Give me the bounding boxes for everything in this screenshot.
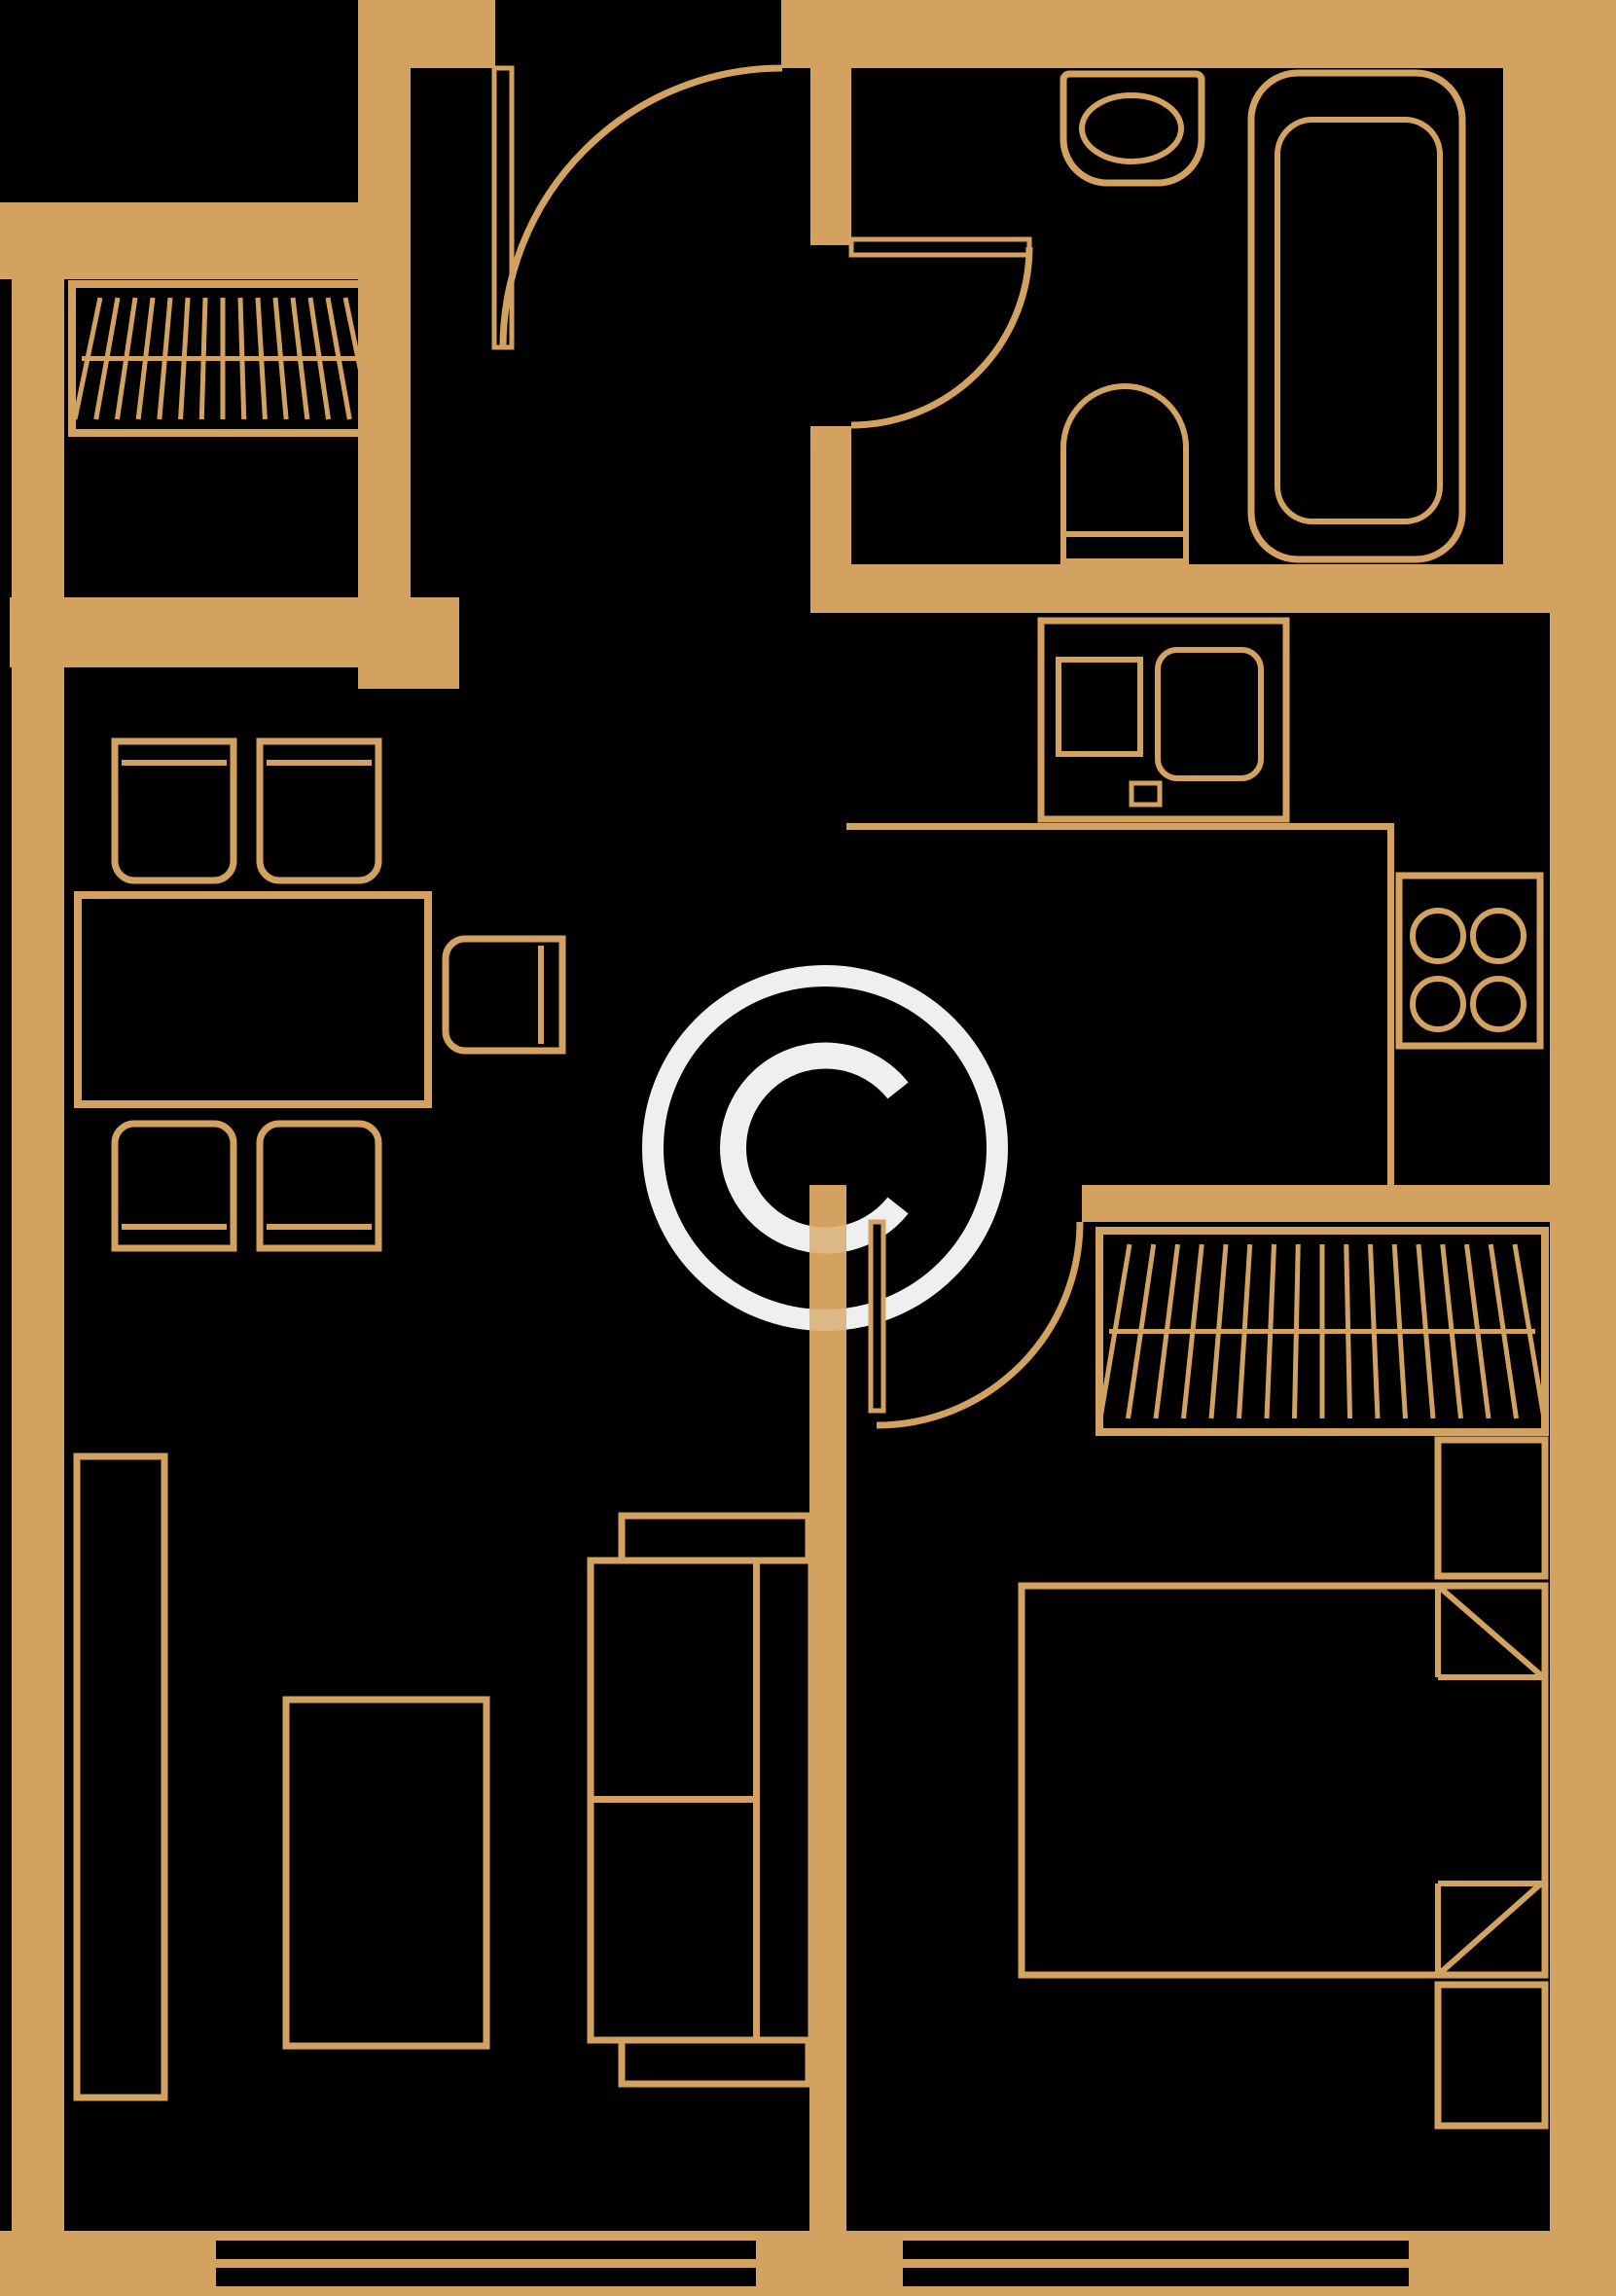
floor-plan-canvas [0, 0, 1616, 2296]
wall-entry-nub [411, 597, 459, 689]
wall-left-exterior [12, 202, 64, 2231]
wall-right-exterior [1550, 68, 1616, 2296]
floor-plan-page [0, 0, 1616, 2296]
kitchen-counter-edge-v [1387, 823, 1394, 1185]
sofa-seat-divider [591, 1796, 760, 1803]
window-living-pane-2 [216, 2268, 756, 2286]
window-bedroom-pane-2 [903, 2268, 1409, 2286]
wall-bedroom-top [1082, 1185, 1550, 1222]
wall-bathroom-left-upper [810, 68, 851, 245]
wardrobe-entry [72, 284, 374, 433]
wall-top-left-cap [358, 0, 495, 68]
window-living-pane-1 [216, 2241, 756, 2259]
bedroom-door-leaf [871, 1222, 883, 1411]
window-bedroom-pane-1 [903, 2241, 1409, 2259]
wall-bathroom-kitchen [810, 564, 1550, 613]
wall-top-left-vertical [358, 0, 411, 689]
wall-bathroom-right [1503, 68, 1550, 613]
wall-entry-band [10, 597, 457, 667]
wall-top-exterior [781, 0, 1616, 68]
bathroom-door-leaf [851, 239, 1029, 255]
wall-center-stub [809, 1185, 846, 2231]
kitchen-counter-edge-h [846, 823, 1393, 830]
